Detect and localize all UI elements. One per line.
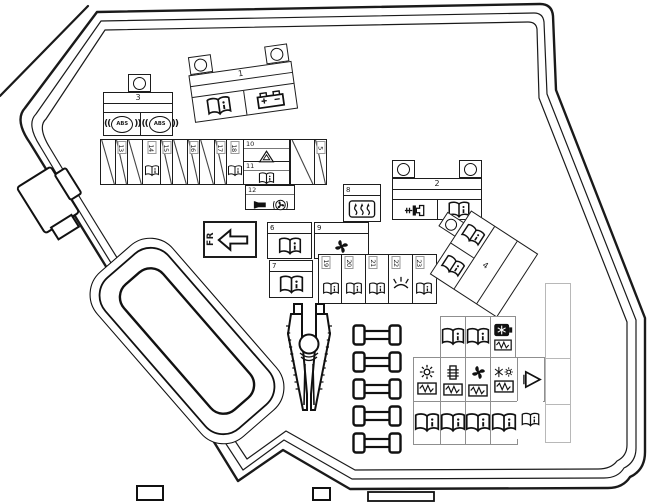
relay-cell (465, 316, 491, 358)
fuse-slot-18: 18 (227, 140, 242, 184)
fuse-strip-19-23: 19 20 21 22 23 (318, 254, 437, 304)
spare-fuse-icon (352, 432, 402, 454)
fuse-slot-15: 15 (161, 140, 173, 184)
book-icon (491, 412, 517, 434)
book-icon (440, 412, 466, 434)
cooling-fan-icon (272, 199, 289, 211)
relay-cell (413, 401, 441, 445)
book-icon (277, 237, 303, 256)
fuse-slot-empty (101, 140, 116, 184)
resistor-icon (494, 380, 514, 393)
relay-cell-defrost (490, 357, 518, 402)
book-icon (414, 412, 440, 434)
spare-fuse-icon (352, 351, 402, 373)
fuse-slot-empty (200, 140, 215, 184)
relay-cell (517, 401, 543, 439)
spare-fuse-icon (352, 378, 402, 400)
relay-cell-triangle (517, 357, 545, 402)
cover-slot (78, 226, 296, 456)
resistor-icon (417, 382, 437, 395)
resistor-icon (494, 339, 512, 351)
fuse-slot-empty (290, 139, 315, 185)
resistor-icon (468, 384, 488, 397)
book-icon (345, 279, 362, 299)
book-icon (466, 327, 490, 347)
arrow-left-icon (217, 227, 249, 253)
fuse-slot-22: 22 (388, 254, 413, 304)
relay-grid-empty-column (545, 283, 571, 443)
spare-fuse-holder (352, 324, 402, 454)
ac-badge-icon (493, 323, 513, 337)
book-icon (278, 275, 305, 295)
book-icon-small (521, 412, 540, 428)
fr-label: FR (206, 234, 216, 246)
fuse-slot-13: 13 (116, 140, 128, 184)
triangle-right-icon (521, 370, 542, 389)
fuse-slot-20: 20 (341, 254, 366, 304)
spare-fuse-icon (352, 324, 402, 346)
book-icon (369, 279, 386, 299)
spare-fuse-icon (352, 405, 402, 427)
block-number: 3 (104, 93, 172, 104)
fuse-slot-19: 19 (318, 254, 343, 304)
horn-icon (252, 200, 267, 210)
relay-block-2: 2 (392, 160, 482, 220)
book-icon (322, 279, 339, 299)
bolt-hole-icon (464, 163, 477, 176)
light-icon (391, 275, 410, 289)
heated-rear-window-icon (348, 200, 376, 218)
bolt-hole-icon (193, 57, 208, 72)
fuse-slot-16: 16 (188, 140, 200, 184)
abs-icon: ((ABS)) (104, 113, 141, 135)
fuse-cell-10: 10 (244, 140, 289, 162)
fuse-cell-10-11: 10 11 (243, 139, 290, 185)
fuse-cell-11: 11 (244, 162, 289, 183)
bolt-hole-icon (397, 163, 410, 176)
fuse-slot-empty (128, 140, 143, 184)
resistor-icon (443, 383, 463, 396)
relay-cell (465, 401, 491, 445)
fuse-box-diagram: 3 ((ABS)) ((ABS)) 1 2 13 1 (0, 0, 650, 502)
book-icon (416, 279, 433, 299)
fuse-cell-7: 7 (269, 260, 313, 298)
bolt-hole-icon (269, 47, 284, 62)
fuse-slot-empty (173, 140, 188, 184)
book-icon (144, 162, 159, 180)
fan-icon (469, 363, 488, 382)
relay-cell (440, 401, 466, 445)
book-icon (441, 327, 465, 347)
fuse-cell-12: 12 (245, 185, 295, 210)
bolt-tab (128, 74, 151, 92)
relay-cell (490, 401, 518, 445)
relay-cell-ac (490, 316, 516, 358)
relay-cell (440, 316, 466, 358)
book-icon (465, 412, 491, 434)
fuse-slot-17: 17 (215, 140, 227, 184)
book-icon (227, 162, 242, 180)
relay-cell-light (413, 357, 441, 402)
snowflake-sun-icon (493, 366, 515, 378)
battery-icon (255, 88, 285, 110)
abs-icon: ((ABS)) (141, 113, 177, 135)
fuse-slot-23: 23 (412, 254, 437, 304)
relay-cell-fan (465, 357, 491, 402)
fuse-puller-tool (281, 302, 337, 417)
relay-block-3: 3 ((ABS)) ((ABS)) (103, 74, 173, 136)
fan-icon (332, 237, 351, 256)
fuse-slot-21: 21 (365, 254, 390, 304)
fuse-cell-6: 6 (267, 222, 312, 259)
glow-plug-icon (446, 364, 460, 381)
fuse-strip-13-18: 13 14 15 16 17 18 (100, 139, 244, 185)
sun-icon (419, 364, 435, 380)
block-number: 2 (393, 179, 481, 190)
fuse-slot-14: 14 (143, 140, 161, 184)
lighter-icon (404, 203, 426, 218)
bolt-hole-icon (133, 77, 146, 90)
bolt-tab (459, 160, 482, 178)
bolt-tab (392, 160, 415, 178)
fr-direction-box: FR (203, 221, 257, 258)
book-icon (205, 95, 234, 118)
relay-cell-glowplug (440, 357, 466, 402)
fuse-slot-5: 5 (314, 139, 327, 185)
book-icon (257, 172, 276, 185)
fuse-cell-8: 8 (343, 184, 381, 222)
